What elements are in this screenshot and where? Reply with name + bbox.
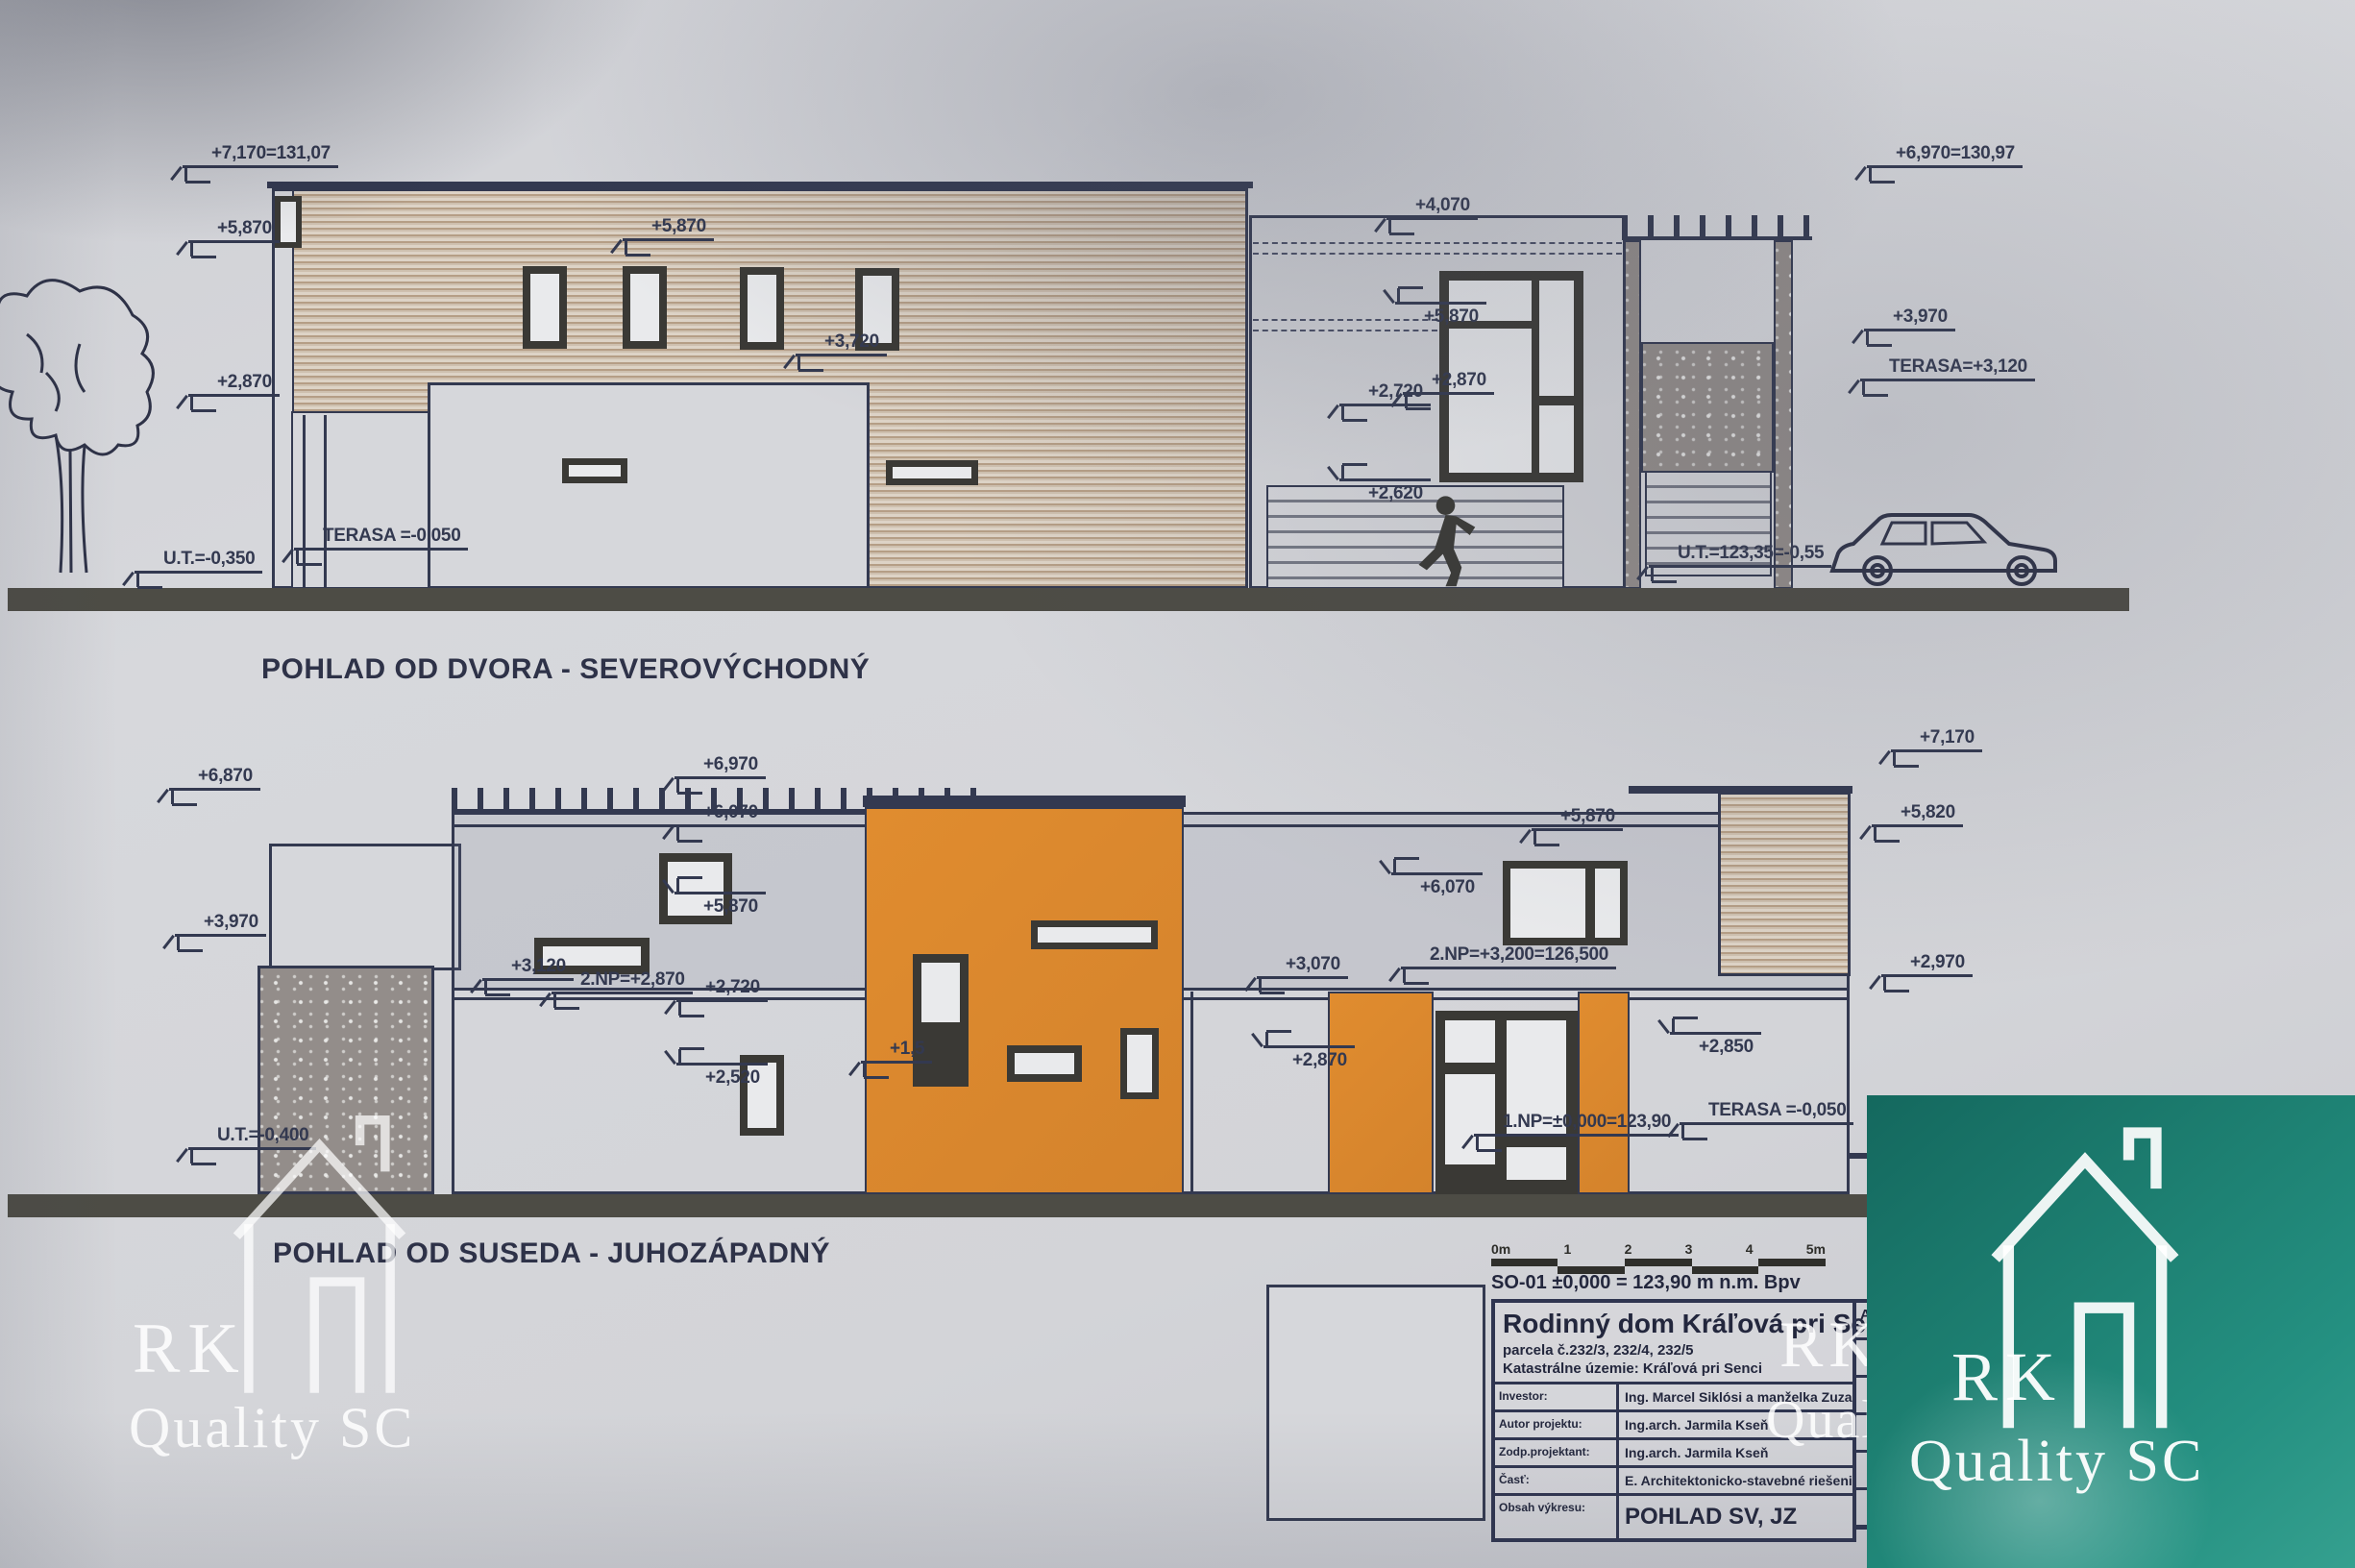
elevation-label: +2,870 <box>1263 1045 1355 1069</box>
scale-tick-label: 4 <box>1746 1241 1754 1257</box>
level-mark-icon <box>678 1002 706 1016</box>
timber-strip-block <box>1718 792 1851 976</box>
elevation-label: +2,850 <box>1670 1032 1761 1056</box>
datum-note: SO-01 ±0,000 = 123,90 m n.m. Bpv <box>1491 1272 1801 1294</box>
elevation-label: +2,970 <box>1881 953 1973 977</box>
row-label: Zodp.projektant: <box>1495 1440 1619 1465</box>
human-figure <box>1405 495 1486 589</box>
elevation-marker: +2,520 <box>676 1049 768 1087</box>
elevation-label: +1,5 <box>861 1040 932 1064</box>
elevation-label: +2,870 <box>188 373 280 397</box>
level-mark-icon <box>190 243 218 257</box>
tree-sketch <box>0 257 157 575</box>
elevation-label: +5,820 <box>1872 803 1963 827</box>
elevation-label: +6,970 <box>675 755 766 779</box>
row-label: Autor projektu: <box>1495 1412 1619 1437</box>
scale-tick-label: 3 <box>1685 1241 1693 1257</box>
orange-pier <box>1578 992 1630 1194</box>
elevation-label: +2,620 <box>1339 478 1431 502</box>
elevation-marker: +2,870 <box>1263 1032 1355 1069</box>
level-mark-icon <box>1388 220 1416 233</box>
elevation-label: +3,970 <box>1864 307 1955 331</box>
elevation-label: +6,070 <box>675 803 766 827</box>
level-mark-icon <box>1341 406 1369 420</box>
elevation-marker: +6,970=130,97 <box>1867 144 2023 182</box>
scale-bar-segments <box>1491 1259 1826 1266</box>
facade-joint-line <box>1253 242 1622 244</box>
elevation-label: U.T.=123,35=-0,55 <box>1649 544 1831 568</box>
elevation-label: +2,520 <box>676 1063 768 1087</box>
level-mark-icon <box>484 981 512 994</box>
level-mark-icon <box>296 551 324 564</box>
agency-logo-square: RK Quality SC <box>1867 1095 2355 1568</box>
agency-quality-sc: Quality SC <box>1909 1428 2204 1496</box>
level-mark-icon <box>1883 977 1911 991</box>
level-mark-icon <box>797 356 825 370</box>
elevation-marker: +3,070 <box>1257 955 1348 992</box>
level-mark-icon <box>1893 752 1921 766</box>
glazed-door-assembly <box>1435 1011 1578 1194</box>
elevation-label: U.T.=-0,350 <box>135 550 262 574</box>
watermark-quality-sc: Quality SC <box>129 1395 415 1461</box>
elevation-label: +2,720 <box>1339 382 1431 406</box>
elevation-marker: +3,970 <box>1864 307 1955 345</box>
elevation-marker: +7,170=131,07 <box>183 144 338 182</box>
annex-fence-band <box>1622 215 1812 240</box>
level-mark-icon <box>676 827 704 841</box>
concrete-wall <box>1641 342 1774 473</box>
elevation-marker: +2,970 <box>1881 953 1973 991</box>
window <box>523 266 567 349</box>
roof-edge-line <box>267 182 1253 188</box>
level-mark-icon <box>177 937 205 950</box>
row-label: Obsah výkresu: <box>1495 1496 1619 1538</box>
view1-title: POHLAD OD DVORA - SEVEROVÝCHODNÝ <box>261 653 870 686</box>
left-white-wall <box>269 844 461 970</box>
level-mark-icon <box>1393 859 1421 872</box>
elevation-marker: +2,620 <box>1339 465 1431 502</box>
elevation-marker: +3,720 <box>796 332 887 370</box>
elevation-marker: +5,870 <box>675 878 766 916</box>
elevation-label: +5,870 <box>623 217 714 241</box>
facade-joint-line <box>1253 330 1437 331</box>
elevation-marker: +3,970 <box>175 913 266 950</box>
elevation-marker: +5,870 <box>1532 807 1623 845</box>
level-mark-icon <box>676 779 704 793</box>
elevation-label: +3,970 <box>175 913 266 937</box>
level-mark-icon <box>1651 568 1679 581</box>
scale-tick-label: 0m <box>1491 1241 1510 1257</box>
elevation-marker: TERASA =-0,050 <box>294 527 468 564</box>
level-mark-icon <box>678 1049 706 1063</box>
slot-window <box>1031 920 1158 949</box>
window <box>623 266 667 349</box>
elevation-label: +4,070 <box>1386 196 1478 220</box>
slot-window <box>1007 1045 1082 1082</box>
elevation-label: +5,870 <box>1395 302 1486 326</box>
elevation-label: +3,720 <box>796 332 887 356</box>
elevation-label: +5,870 <box>188 219 280 243</box>
stamp-box <box>1266 1285 1485 1521</box>
scale-bar: 0m 1 2 3 4 5m <box>1491 1241 1826 1274</box>
level-mark-icon <box>136 574 164 587</box>
facade-joint-line <box>1253 253 1622 255</box>
window <box>1120 1028 1159 1099</box>
window <box>740 267 784 350</box>
elevation-marker: TERASA =-0,050 <box>1680 1101 1853 1139</box>
annex-post <box>1624 240 1641 589</box>
elevation-label: +7,170 <box>1891 728 1982 752</box>
level-mark-icon <box>1681 1125 1709 1139</box>
elevation-marker: +5,870 <box>188 219 280 257</box>
title-block-row: Časť: E. Architektonicko-stavebné riešen… <box>1495 1465 1852 1493</box>
level-mark-icon <box>1672 1018 1700 1032</box>
level-mark-icon <box>1874 827 1901 841</box>
elevation-marker: +6,870 <box>169 767 260 804</box>
level-mark-icon <box>1476 1137 1504 1150</box>
level-mark-icon <box>184 168 212 182</box>
scale-tick-label: 1 <box>1564 1241 1572 1257</box>
elevation-label: 1.NP=±0,000=123,90 <box>1474 1113 1679 1137</box>
elevation-label: 2.NP=+3,200=126,500 <box>1401 945 1616 969</box>
row-label: Časť: <box>1495 1468 1619 1493</box>
ground-line-view1 <box>8 588 2129 611</box>
car-drawing <box>1824 496 2066 592</box>
window <box>1503 861 1628 945</box>
elevation-marker: +2,720 <box>1339 382 1431 420</box>
elevation-label: TERASA=+3,120 <box>1860 357 2035 381</box>
level-mark-icon <box>553 994 581 1008</box>
elevation-label: +6,070 <box>1391 872 1483 896</box>
elevation-marker: +5,820 <box>1872 803 1963 841</box>
elevation-label: +6,870 <box>169 767 260 791</box>
level-mark-icon <box>1869 168 1897 182</box>
orange-pier <box>1328 992 1434 1194</box>
level-mark-icon <box>190 1150 218 1164</box>
level-mark-icon <box>1403 969 1431 983</box>
elevation-marker: +2,850 <box>1670 1018 1761 1056</box>
level-mark-icon <box>1862 381 1890 395</box>
elevation-label: +5,870 <box>1532 807 1623 831</box>
elevation-label: +2,720 <box>676 978 768 1002</box>
elevation-marker: TERASA=+3,120 <box>1860 357 2035 395</box>
elevation-marker: 2.NP=+3,200=126,500 <box>1401 945 1616 983</box>
watermark-rk: RK <box>133 1309 247 1390</box>
elevation-label: +7,170=131,07 <box>183 144 338 168</box>
elevation-marker: +1,5 <box>861 1040 932 1077</box>
scale-tick-label: 2 <box>1625 1241 1632 1257</box>
elevation-marker: +5,870 <box>1395 288 1486 326</box>
drawing-content-value: POHLAD SV, JZ <box>1619 1496 1852 1538</box>
elevation-marker: 1.NP=±0,000=123,90 <box>1474 1113 1679 1150</box>
elevation-marker: U.T.=123,35=-0,55 <box>1649 544 1831 581</box>
elevation-label: TERASA =-0,050 <box>1680 1101 1853 1125</box>
level-mark-icon <box>1265 1032 1293 1045</box>
level-mark-icon <box>863 1064 891 1077</box>
elevation-marker: +6,070 <box>1391 859 1483 896</box>
annex-post <box>1774 240 1793 589</box>
elevation-label: TERASA =-0,050 <box>294 527 468 551</box>
row-value: E. Architektonicko-stavebné riešenie <box>1619 1468 1852 1493</box>
elevation-marker: +7,170 <box>1891 728 1982 766</box>
watermark-house-icon <box>216 1105 423 1398</box>
level-mark-icon <box>1259 979 1287 992</box>
level-mark-icon <box>171 791 199 804</box>
elevation-label: 2.NP=+2,870 <box>552 970 693 994</box>
slot-window <box>886 460 978 485</box>
level-mark-icon <box>1533 831 1561 845</box>
level-mark-icon <box>1397 288 1425 302</box>
elevation-marker: +4,070 <box>1386 196 1478 233</box>
elevation-marker: +2,870 <box>188 373 280 410</box>
elevation-label: +5,870 <box>675 892 766 916</box>
agency-rk: RK <box>1951 1337 2063 1417</box>
tower-roof-line <box>863 796 1186 807</box>
scale-tick-label: 5m <box>1806 1241 1826 1257</box>
row-label: Investor: <box>1495 1384 1619 1409</box>
title-block-row: Obsah výkresu: POHLAD SV, JZ <box>1495 1493 1852 1538</box>
level-mark-icon <box>1341 465 1369 478</box>
level-mark-icon <box>625 241 652 255</box>
elevation-label: +6,970=130,97 <box>1867 144 2023 168</box>
level-mark-icon <box>190 397 218 410</box>
elevation-label: +3,070 <box>1257 955 1348 979</box>
elevation-marker: +5,870 <box>623 217 714 255</box>
elevation-marker: U.T.=-0,350 <box>135 550 262 587</box>
elevation-marker: +6,070 <box>675 803 766 841</box>
elevation-marker: +6,970 <box>675 755 766 793</box>
level-mark-icon <box>676 878 704 892</box>
elevation-marker: +2,720 <box>676 978 768 1016</box>
white-volume-main <box>428 382 870 589</box>
slot-window <box>562 458 627 483</box>
level-mark-icon <box>1866 331 1894 345</box>
